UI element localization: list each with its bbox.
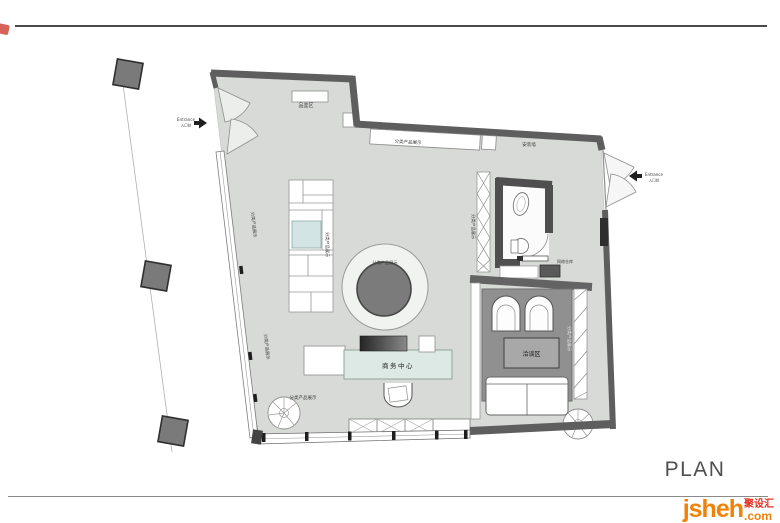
plan-title: PLAN [648,458,742,482]
monitor [360,336,407,351]
label-entrance-right-en: Entrance [645,172,663,177]
desk-chair [384,383,412,407]
plant-left [268,397,300,429]
storage-box [540,265,560,277]
label-bath-shelf-display: 分类产品展示 [470,214,477,239]
sideboard-top [292,91,328,102]
label-shelf-display: 分类产品展示 [324,232,331,257]
site-logo[interactable]: jsheh 聚设汇 .com [683,497,774,522]
label-entrance-left-en: Entrance [177,117,195,122]
label-circle-display: 分类产品展示 [372,259,397,266]
property-line [120,62,172,452]
storage-counter [500,266,538,278]
meeting-room [470,279,592,419]
armchair [525,296,553,331]
wall-column [600,218,608,246]
label-business-center: 商务中心 [382,361,414,370]
label-meeting-area: 洽谈区 [522,350,540,358]
label-meeting-display: 分类产品展示 [566,326,573,351]
hatched-shelf [477,172,490,272]
side-shelf [574,289,587,399]
sofa [486,377,568,415]
label-entrance-left-cn: 入口处 [181,123,192,128]
logo-suffix-text[interactable]: .com [744,510,772,522]
label-install-wall: 安装墙 [522,141,536,148]
display-circle [342,244,428,330]
logo-text[interactable]: jsheh [683,497,743,522]
bottom-rule [8,496,768,497]
entrance-arrow-right-icon [194,118,207,129]
label-display-bottom: 分类产品展示 [290,394,317,401]
label-entrance-right-cn: 入口处 [649,178,660,183]
right-entrance-door [603,150,636,210]
floor-plan: Entrance 入口处 Entrance 入口处 品鉴区 分类产品展示 安装墙… [0,0,780,522]
label-tasting-area: 品鉴区 [298,102,313,109]
label-network-storage: 网络仓库 [557,258,573,264]
desk-box [419,336,435,352]
armchair [492,296,520,331]
